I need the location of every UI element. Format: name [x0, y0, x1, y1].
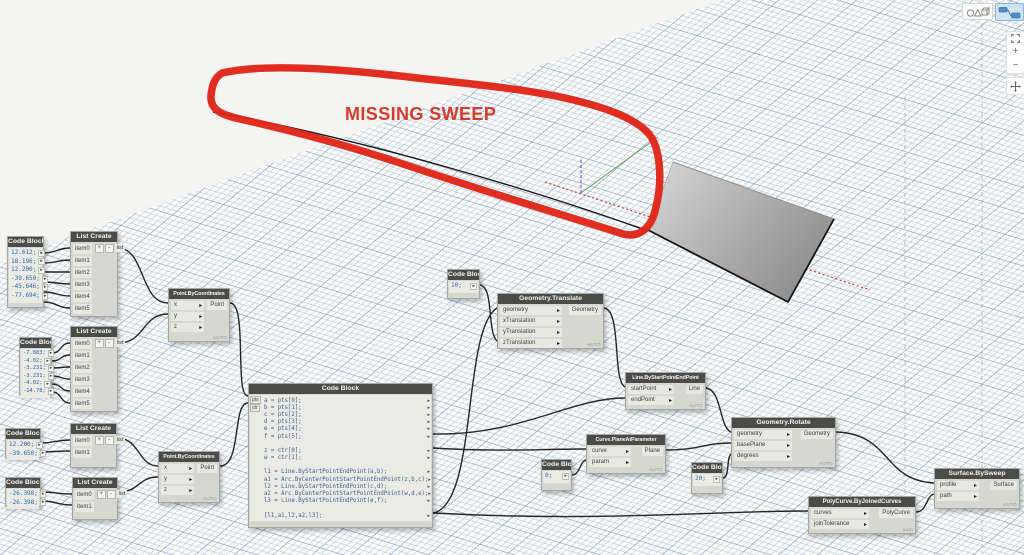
input-port-y[interactable]: y▸ [171, 312, 204, 321]
wire [916, 494, 934, 512]
node-code-block-main[interactable]: Code Block pts ctr a = pts[0];▸ b = pts[… [248, 383, 433, 528]
port-arrow-icon: ▸ [557, 341, 560, 347]
zoom-to-fit-icon[interactable] [1011, 34, 1020, 43]
output-port[interactable]: ▸ [48, 373, 55, 380]
output-port-geometry[interactable]: Geometry [801, 430, 833, 439]
output-port[interactable]: ▸ [48, 388, 55, 395]
code-line: -4.02; [23, 380, 42, 388]
output-port[interactable]: ▸ [38, 250, 45, 257]
output-port[interactable]: ▸ [40, 491, 47, 498]
code-block-editor[interactable]: 20;▸ [693, 474, 721, 486]
node-list-create-3[interactable]: List Create item0 item1 + - list [70, 423, 117, 468]
port-arrow-icon: ▸ [199, 303, 202, 309]
node-header[interactable]: Curve.PlaneAtParameter [587, 435, 665, 445]
output-port[interactable]: ▸ [427, 405, 430, 411]
code-line: -14.78; [23, 388, 46, 396]
node-header[interactable]: PolyCurve.ByJoinedCurves [809, 497, 915, 507]
code-line: a1 = Arc.ByCenterPointStartPointEndPoint… [264, 477, 428, 483]
output-port[interactable]: ▸ [427, 448, 430, 454]
code-line: 0; [545, 472, 552, 481]
node-header[interactable]: Code Block [8, 237, 43, 247]
input-port-path[interactable]: path▸ [937, 492, 979, 501]
code-line: 20; [695, 475, 706, 484]
code-line: -4.02; [23, 358, 42, 366]
code-line: l1 = Line.ByStartPointEndPoint(a,b); [264, 469, 387, 475]
output-port[interactable]: ▸ [562, 473, 569, 480]
port-arrow-icon: ▸ [974, 483, 977, 489]
output-port[interactable]: ▸ [427, 398, 430, 404]
node-header[interactable]: Code Block [448, 270, 479, 280]
wire [706, 388, 731, 432]
code-line: 18.196; [11, 258, 36, 267]
code-line: -26.398; [9, 499, 38, 508]
code-line: z = ctr[0]; [264, 448, 302, 454]
node-header[interactable]: Line.ByStartPointEndPoint [626, 373, 705, 383]
output-port[interactable]: ▸ [38, 258, 45, 265]
output-port[interactable]: ▸ [44, 358, 51, 365]
code-block-editor[interactable]: 12.200;▸ -39.650;▸ [7, 440, 39, 460]
code-line: 12.200; [9, 441, 34, 450]
code-line: d = pts[3]; [264, 419, 302, 425]
node-header[interactable]: Code Block [692, 463, 722, 473]
node-code-block-0[interactable]: Code Block 0;▸ [541, 459, 572, 491]
node-header[interactable]: Code Block [249, 384, 432, 394]
wire [666, 443, 731, 450]
zoom-in-button[interactable]: + [1013, 47, 1019, 57]
wire [723, 454, 731, 478]
graph-nodes-icon [998, 6, 1021, 19]
output-port[interactable]: ▸ [42, 284, 49, 291]
output-port[interactable]: ▸ [427, 412, 430, 418]
output-port[interactable]: ▸ [36, 442, 43, 449]
node-code-block-10[interactable]: Code Block 10;▸ [447, 269, 480, 299]
lacing-label[interactable]: auto [903, 527, 913, 532]
wire [836, 432, 934, 483]
input-port-geometry[interactable]: geometry▸ [734, 430, 792, 439]
node-list-create-1[interactable]: List Create item0 item1 item2 item3 item… [70, 231, 118, 317]
output-port[interactable]: ▸ [470, 283, 477, 290]
code-line: b = pts[1]; [264, 405, 302, 411]
node-geometry-translate[interactable]: Geometry.Translate geometry▸ xTranslatio… [497, 293, 604, 349]
code-block-editor[interactable]: 10;▸ [449, 281, 478, 293]
add-item-button[interactable]: + [95, 339, 104, 348]
code-line: -26.398; [9, 490, 38, 499]
remove-item-button[interactable]: - [105, 339, 114, 348]
remove-item-button[interactable]: - [105, 436, 114, 445]
node-header[interactable]: Code Block [6, 429, 40, 439]
port-arrow-icon: ▸ [787, 432, 790, 438]
output-port-point[interactable]: Point [207, 301, 227, 310]
input-port-item5[interactable]: item5 [73, 304, 92, 314]
input-port-item1[interactable]: item1 [73, 351, 92, 361]
wire [52, 384, 70, 391]
input-port-baseplane[interactable]: basePlane▸ [734, 441, 792, 450]
port-arrow-icon: ▸ [669, 387, 672, 393]
wire [118, 314, 168, 343]
output-port-list[interactable]: list [115, 436, 126, 444]
node-header[interactable]: List Create [71, 424, 116, 434]
port-arrow-icon: ▸ [557, 330, 560, 336]
output-port[interactable]: ▸ [427, 513, 430, 519]
node-header[interactable]: Code Block [6, 478, 40, 488]
output-port[interactable]: ▸ [44, 381, 51, 388]
input-port-xtranslation[interactable]: xTranslation▸ [500, 317, 562, 326]
node-polycurve-by-joined-curves[interactable]: PolyCurve.ByJoinedCurves curves▸ joinTol… [808, 496, 916, 534]
code-line: -77.694; [11, 292, 40, 301]
input-port-item5[interactable]: item5 [73, 399, 92, 409]
node-header[interactable]: List Create [73, 478, 117, 488]
code-block-editor[interactable]: -7.883;▸ -4.02;▸ -3.231;▸ -3.231;▸ -4.02… [21, 349, 50, 398]
input-port-z[interactable]: z▸ [171, 323, 204, 332]
geometry-preview-button[interactable] [962, 3, 993, 20]
wire [572, 460, 586, 475]
wire [118, 248, 168, 303]
output-port[interactable]: ▸ [48, 365, 55, 372]
node-header[interactable]: List Create [71, 232, 117, 242]
code-line: -3.231; [23, 365, 46, 373]
node-header[interactable]: Code Block [20, 338, 51, 348]
node-code-block-4[interactable]: Code Block -26.398;▸ -26.398;▸ [5, 477, 41, 507]
output-port-list[interactable]: list [117, 490, 128, 498]
output-port-polycurve[interactable]: PolyCurve [879, 509, 913, 518]
port-arrow-icon: ▸ [669, 398, 672, 404]
code-line: -3.231; [23, 373, 46, 381]
port-arrow-icon: ▸ [626, 449, 629, 455]
add-item-button[interactable]: + [95, 436, 104, 445]
node-header[interactable]: Point.ByCoordinates [159, 452, 219, 462]
input-port-x[interactable]: x▸ [161, 464, 194, 473]
code-line: l3 = Line.ByStartPointEndPoint(e,f); [264, 498, 387, 504]
node-code-block-20[interactable]: Code Block 20;▸ [691, 462, 723, 494]
code-line: c = pts[2]; [264, 412, 302, 418]
lacing-label[interactable]: AUTO [819, 461, 833, 466]
input-port-item2[interactable]: item2 [73, 363, 92, 373]
input-port-item3[interactable]: item3 [73, 280, 92, 290]
lacing-label[interactable]: AUTO [213, 335, 227, 340]
pan-button[interactable] [1006, 77, 1024, 95]
output-port[interactable]: ▸ [427, 434, 430, 440]
code-line: -7.883; [23, 350, 46, 358]
code-line: a = pts[0]; [264, 398, 302, 404]
code-line: [l1,a1,l2,a2,l3]; [264, 513, 322, 519]
output-port[interactable]: ▸ [427, 484, 430, 490]
code-block-editor[interactable]: 0;▸ [543, 471, 570, 483]
node-point-by-coordinates-2[interactable]: Point.ByCoordinates x▸ y▸ z▸ Point AUTO [158, 451, 220, 503]
wire-layer [0, 0, 1024, 555]
code-line: l2 = Line.ByStartPointEndPoint(c,d); [264, 484, 387, 490]
wire [604, 308, 625, 387]
input-port-jointolerance[interactable]: joinTolerance▸ [811, 520, 869, 529]
output-port[interactable]: ▸ [427, 426, 430, 432]
code-line: 12.612; [11, 249, 36, 258]
output-port[interactable]: ▸ [713, 476, 720, 483]
node-code-block-3[interactable]: Code Block 12.200;▸ -39.650;▸ [5, 428, 41, 458]
remove-item-button[interactable]: - [107, 490, 116, 499]
code-line: 10; [451, 282, 462, 291]
zoom-out-button[interactable]: − [1013, 61, 1019, 71]
output-port-list[interactable]: list [115, 339, 126, 347]
geometry-shapes-icon [966, 6, 990, 18]
port-arrow-icon: ▸ [199, 325, 202, 331]
node-code-block-1[interactable]: Code Block 12.612;▸ 18.196;▸ 12.200;▸ -3… [7, 236, 44, 308]
output-port[interactable]: ▸ [40, 499, 47, 506]
output-port[interactable]: ▸ [427, 469, 430, 475]
node-curve-plane-at-parameter[interactable]: Curve.PlaneAtParameter curve▸ param▸ Pla… [586, 434, 666, 474]
code-line: f = pts[5]; [264, 434, 302, 440]
input-port-curves[interactable]: curves▸ [811, 509, 869, 518]
port-arrow-icon: ▸ [557, 319, 560, 325]
port-arrow-icon: ▸ [787, 454, 790, 460]
output-port[interactable]: ▸ [48, 350, 55, 357]
node-geometry-rotate[interactable]: Geometry.Rotate geometry▸ basePlane▸ deg… [731, 417, 836, 468]
port-arrow-icon: ▸ [974, 494, 977, 500]
wire [220, 403, 248, 466]
output-port-list[interactable]: list [115, 244, 126, 252]
input-port-ztranslation[interactable]: zTranslation▸ [500, 339, 562, 348]
input-port-x[interactable]: x▸ [171, 301, 204, 310]
lacing-label[interactable]: AUTO [689, 403, 703, 408]
node-list-create-2[interactable]: List Create item0 item1 item2 item3 item… [70, 326, 118, 412]
port-arrow-icon: ▸ [189, 477, 192, 483]
remove-item-button[interactable]: - [105, 244, 114, 253]
input-port-item0[interactable]: item0 [73, 244, 92, 254]
view-tools-toolbar: + − [1006, 31, 1024, 74]
input-port-item0[interactable]: item0 [75, 490, 94, 500]
lacing-label[interactable]: AUTO [1003, 502, 1017, 507]
node-header[interactable]: Point.ByCoordinates [169, 289, 229, 299]
port-arrow-icon: ▸ [626, 460, 629, 466]
port-arrow-icon: ▸ [189, 466, 192, 472]
output-port[interactable]: ▸ [42, 276, 49, 283]
code-line: e = pts[4]; [264, 426, 302, 432]
input-port-degrees[interactable]: degrees▸ [734, 452, 792, 461]
output-port[interactable]: ▸ [40, 450, 47, 457]
code-line: -39.650; [9, 450, 38, 459]
output-port[interactable]: ▸ [38, 267, 45, 274]
code-line: a2 = Arc.ByCenterPointStartPointEndPoint… [264, 491, 428, 497]
add-item-button[interactable]: + [97, 490, 106, 499]
pan-icon [1010, 81, 1021, 92]
input-port-profile[interactable]: profile▸ [937, 481, 979, 490]
wire [52, 367, 70, 368]
output-port-line[interactable]: Line [686, 385, 703, 394]
wire [52, 343, 70, 353]
node-point-by-coordinates-1[interactable]: Point.ByCoordinates x▸ y▸ z▸ Point AUTO [168, 288, 230, 342]
input-port-item0[interactable]: item0 [73, 436, 92, 446]
code-block-editor[interactable]: a = pts[0];▸ b = pts[1];▸ c = pts[2];▸ d… [250, 395, 431, 521]
output-port-geometry[interactable]: Geometry [569, 306, 601, 315]
input-port-item4[interactable]: item4 [73, 387, 92, 397]
port-arrow-icon: ▸ [787, 443, 790, 449]
wire [433, 448, 586, 450]
input-port-item4[interactable]: item4 [73, 292, 92, 302]
node-surface-by-sweep[interactable]: Surface.BySweep profile▸ path▸ Surface A… [934, 468, 1020, 509]
output-port[interactable]: ▸ [428, 491, 431, 497]
output-port-point[interactable]: Point [197, 464, 217, 473]
wire [41, 440, 70, 443]
output-port[interactable]: ▸ [427, 419, 430, 425]
code-block-editor[interactable]: -26.398;▸ -26.398;▸ [7, 489, 39, 509]
code-line: -39.650; [11, 275, 40, 284]
output-port[interactable]: ▸ [427, 498, 430, 504]
graph-view-button[interactable] [995, 3, 1024, 21]
code-line: 12.200; [11, 266, 36, 275]
output-port-plane[interactable]: Plane [642, 447, 663, 456]
output-port[interactable]: ▸ [427, 455, 430, 461]
port-arrow-icon: ▸ [199, 314, 202, 320]
wire [52, 376, 70, 379]
node-line-by-start-point-end-point[interactable]: Line.ByStartPointEndPoint startPoint▸ en… [625, 372, 706, 410]
port-arrow-icon: ▸ [189, 488, 192, 494]
input-port-item2[interactable]: item2 [73, 268, 92, 278]
code-block-editor[interactable]: 12.612;▸ 18.196;▸ 12.200;▸ -39.650;▸ -45… [9, 248, 42, 303]
lacing-label[interactable]: AUTO [649, 467, 663, 472]
input-port-endpoint[interactable]: endPoint▸ [628, 396, 674, 405]
input-port-curve[interactable]: curve▸ [589, 447, 631, 456]
input-port-z[interactable]: z▸ [161, 486, 194, 495]
node-header[interactable]: List Create [71, 327, 117, 337]
input-port-item1[interactable]: item1 [73, 448, 92, 458]
input-port-param[interactable]: param▸ [589, 458, 631, 467]
input-port-item1[interactable]: item1 [75, 502, 94, 512]
input-port-startpoint[interactable]: startPoint▸ [628, 385, 674, 394]
input-port-item0[interactable]: item0 [73, 339, 92, 349]
dynamo-canvas[interactable]: MISSING SWEEP [0, 0, 1024, 555]
wire [44, 248, 70, 253]
node-code-block-2[interactable]: Code Block -7.883;▸ -4.02;▸ -3.231;▸ -3.… [19, 337, 52, 395]
input-port-item1[interactable]: item1 [73, 256, 92, 266]
output-port-surface[interactable]: Surface [990, 481, 1017, 490]
wire [230, 303, 248, 396]
node-header[interactable]: Code Block [542, 460, 571, 470]
wire [433, 398, 625, 434]
wire [52, 392, 70, 403]
wire [433, 308, 497, 513]
code-line: -45.646; [11, 283, 40, 292]
wire [44, 302, 70, 308]
output-port[interactable]: ▸ [42, 293, 49, 300]
input-port-geometry[interactable]: geometry▸ [500, 306, 562, 315]
wire [44, 260, 70, 263]
node-header[interactable]: Surface.BySweep [935, 469, 1019, 479]
input-port-ctr[interactable]: ctr [250, 404, 260, 412]
port-arrow-icon: ▸ [864, 522, 867, 528]
lacing-label[interactable]: AUTO [587, 342, 601, 347]
wire [433, 511, 808, 517]
port-arrow-icon: ▸ [557, 308, 560, 314]
node-list-create-4[interactable]: List Create item0 item1 + - list [72, 477, 118, 520]
input-port-y[interactable]: y▸ [161, 475, 194, 484]
wire [52, 355, 70, 361]
node-header[interactable]: Geometry.Rotate [732, 418, 835, 428]
lacing-label[interactable]: AUTO [203, 496, 217, 501]
output-port[interactable]: ▸ [428, 477, 431, 483]
add-item-button[interactable]: + [95, 244, 104, 253]
input-port-ytranslation[interactable]: yTranslation▸ [500, 328, 562, 337]
input-port-item3[interactable]: item3 [73, 375, 92, 385]
code-line: w = ctr[1]; [264, 455, 302, 461]
node-header[interactable]: Geometry.Translate [498, 294, 603, 304]
port-arrow-icon: ▸ [864, 511, 867, 517]
